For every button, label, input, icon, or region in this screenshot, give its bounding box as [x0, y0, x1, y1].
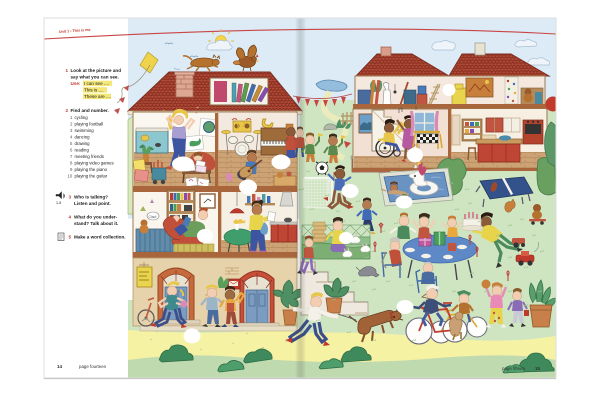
svg-text:playing video games: playing video games — [75, 161, 114, 166]
svg-text:14: 14 — [57, 364, 63, 369]
svg-text:1-5: 1-5 — [56, 201, 61, 205]
svg-text:reading: reading — [75, 148, 90, 153]
svg-text:playing the guitar: playing the guitar — [75, 174, 108, 179]
svg-text:Look at the picture and: Look at the picture and — [71, 68, 122, 73]
svg-text:15: 15 — [535, 366, 541, 371]
svg-text:4: 4 — [69, 215, 72, 220]
svg-text:drawing: drawing — [75, 141, 91, 146]
svg-text:10: 10 — [68, 174, 73, 179]
svg-text:Who is talking?: Who is talking? — [74, 195, 108, 200]
svg-text:I can see ....: I can see .... — [84, 81, 109, 86]
svg-text:playing football: playing football — [75, 122, 104, 127]
svg-text:Ciao!: Ciao! — [149, 215, 157, 219]
svg-text:page fourteen: page fourteen — [79, 364, 107, 369]
svg-text:1: 1 — [66, 68, 69, 73]
svg-text:These are ....: These are .... — [84, 94, 111, 99]
svg-text:page fifteen: page fifteen — [502, 366, 526, 371]
svg-text:dancing: dancing — [75, 135, 91, 140]
svg-text:stand? Talk about it.: stand? Talk about it. — [74, 221, 118, 226]
svg-text:5: 5 — [69, 235, 72, 240]
svg-text:playing the piano: playing the piano — [75, 167, 108, 172]
svg-text:Find and number.: Find and number. — [71, 108, 109, 113]
svg-text:2: 2 — [66, 108, 69, 113]
svg-text:swimming: swimming — [75, 128, 95, 133]
svg-text:Use:: Use: — [71, 81, 81, 86]
svg-text:Listen and point.: Listen and point. — [74, 201, 111, 206]
svg-text:This is ....: This is .... — [84, 88, 104, 93]
svg-text:say what you can see.: say what you can see. — [71, 75, 119, 80]
svg-text:cycling: cycling — [75, 115, 89, 120]
svg-text:What do you under-: What do you under- — [74, 215, 118, 220]
svg-text:Make a word collection.: Make a word collection. — [74, 235, 126, 240]
svg-text:3: 3 — [69, 195, 72, 200]
svg-text:meeting friends: meeting friends — [75, 154, 104, 159]
